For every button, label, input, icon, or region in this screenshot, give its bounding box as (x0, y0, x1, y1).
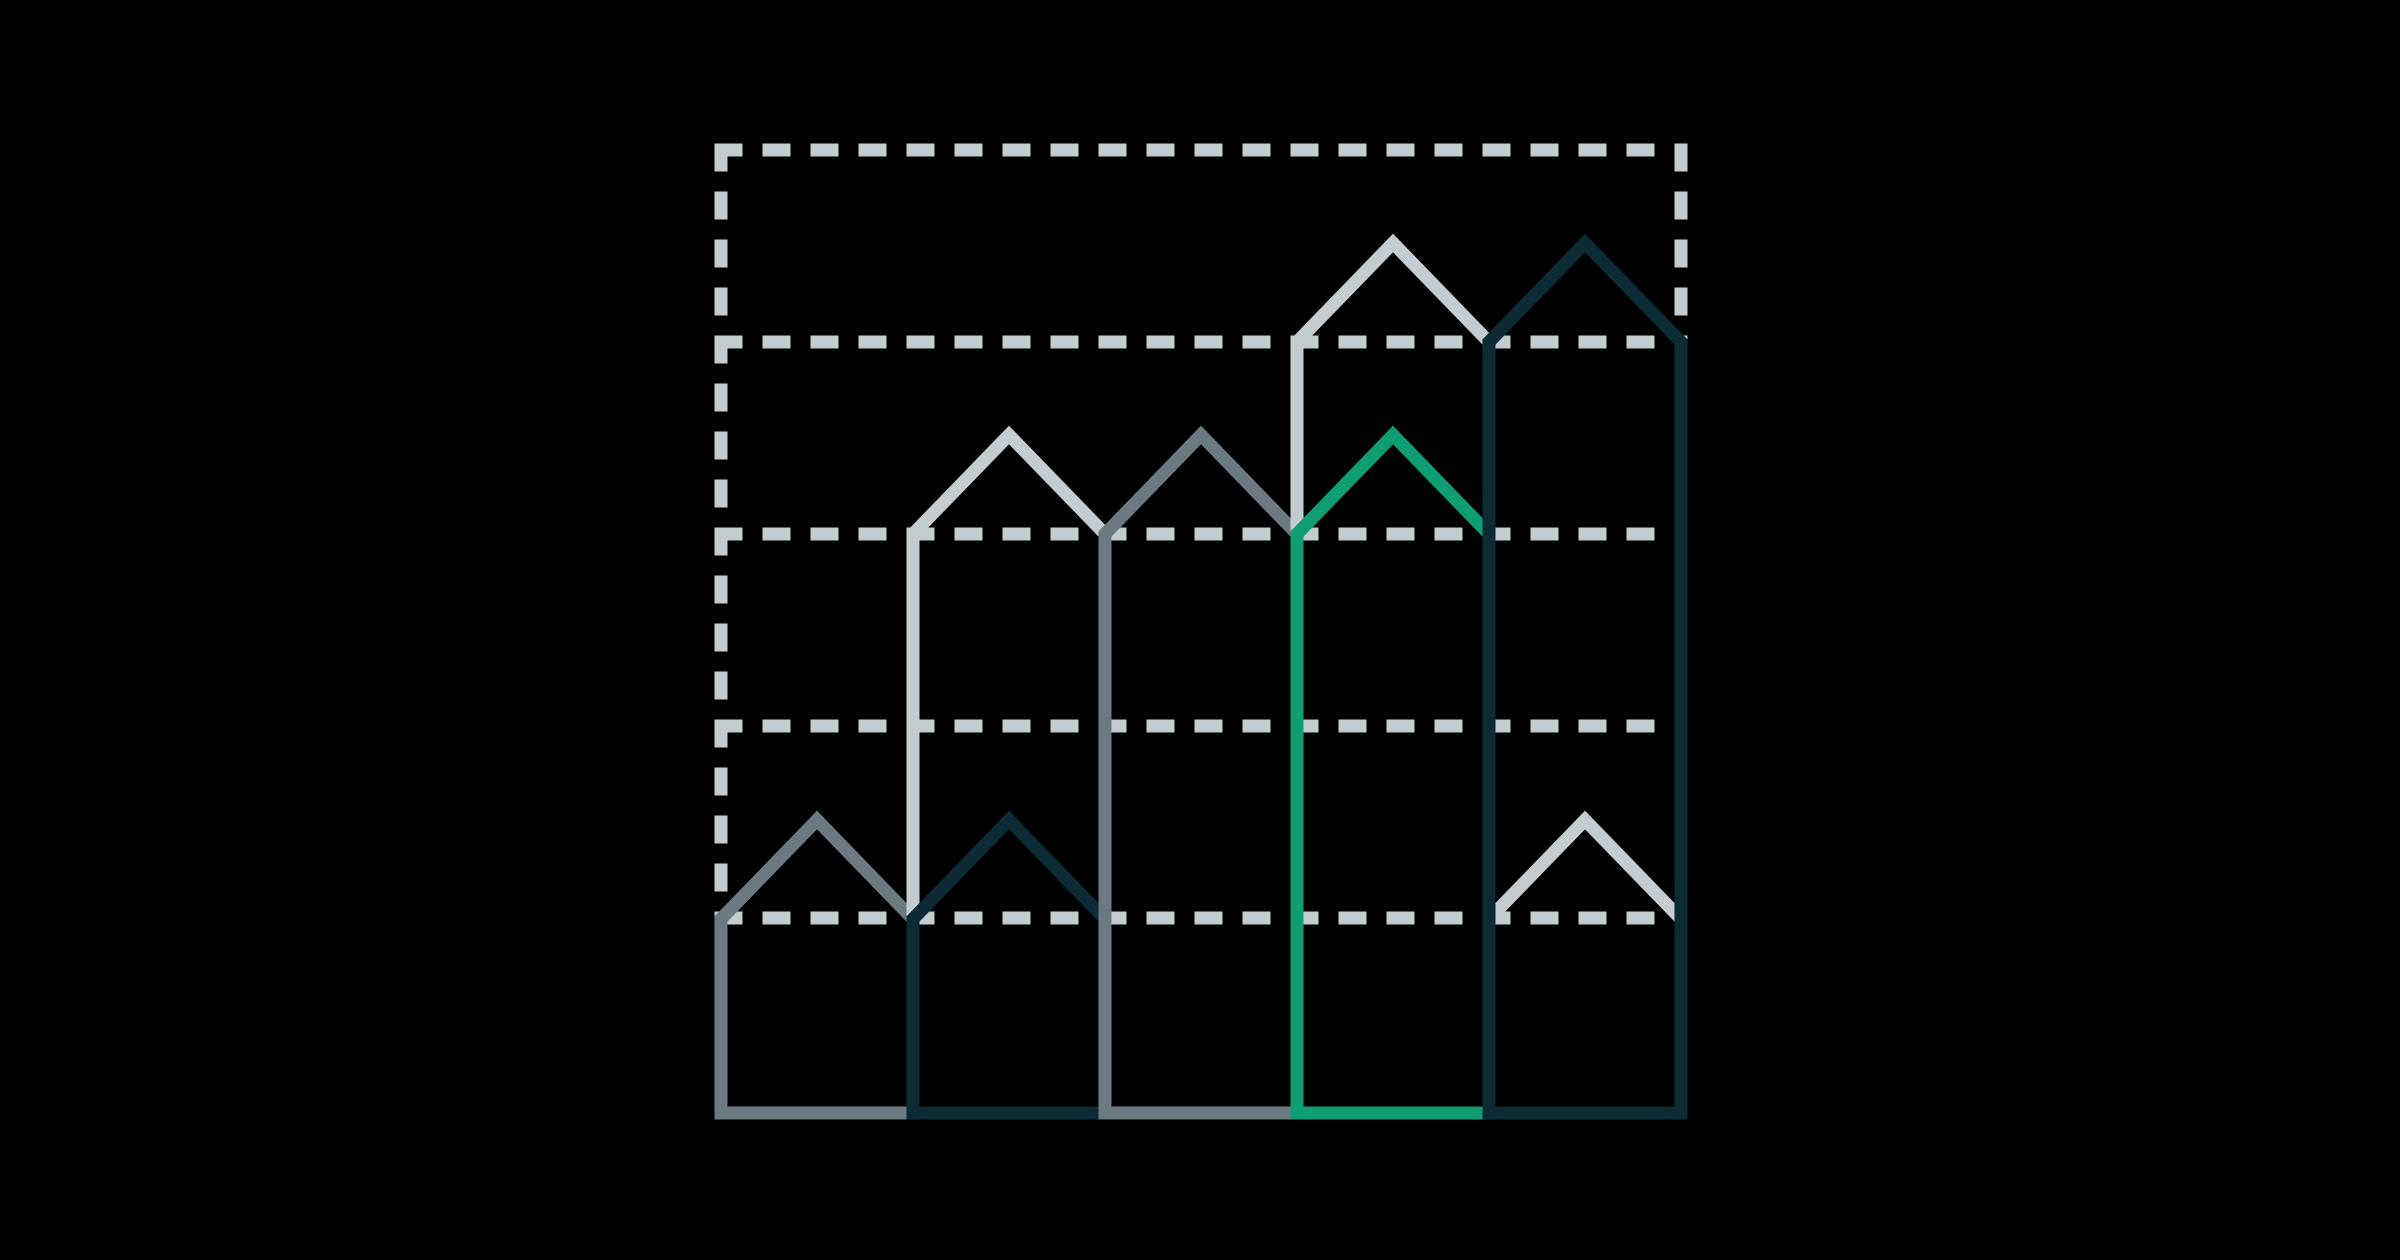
house-tall-light-col4 (1297, 243, 1489, 1113)
house-small-light-roof-col5 (1489, 820, 1681, 919)
house-small-dark-col2 (913, 820, 1105, 1113)
canvas-background (0, 0, 2400, 1260)
house-small-gray-col1 (721, 820, 913, 1113)
houses-chart-svg (0, 0, 2400, 1260)
house-tall-dark-col5 (1489, 243, 1681, 1113)
